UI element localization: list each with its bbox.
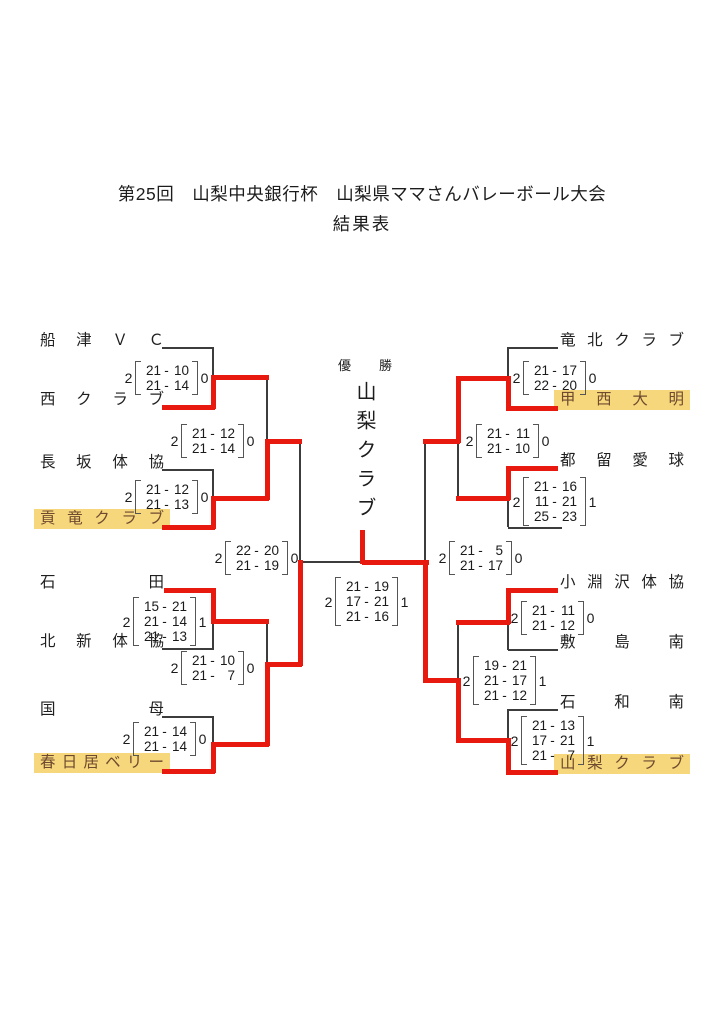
set-score-a: 21 <box>190 668 207 683</box>
set-score-row: 21-7 <box>190 668 235 683</box>
set-score-b: 21 <box>510 658 527 673</box>
score-bracket-left <box>523 361 529 395</box>
set-score-b: 13 <box>170 629 187 644</box>
set-scores: 15-2121-1421-13 <box>140 597 189 646</box>
winner-path-line <box>506 406 558 411</box>
team-shikishima-minami: 敷島南 <box>560 634 684 651</box>
label-char: 竜 <box>560 332 576 349</box>
set-score-a: 21 <box>142 614 159 629</box>
winner-path-line <box>362 560 429 565</box>
set-score-dash: - <box>502 426 513 441</box>
label-char: 南 <box>668 694 684 711</box>
set-score-b: 17 <box>560 363 577 378</box>
set-score-a: 21 <box>485 426 502 441</box>
bracket-line <box>266 623 268 662</box>
winner-path-line <box>456 738 510 743</box>
winner-path-line <box>456 678 461 742</box>
score-bracket-left <box>225 541 231 575</box>
set-score-row: 21-16 <box>344 609 389 624</box>
label-char: Ｖ <box>112 332 128 349</box>
set-score-b: 23 <box>560 509 577 524</box>
champion-name: 山梨クラブ <box>350 381 379 526</box>
score-bracket-left <box>133 597 139 646</box>
set-score-row: 21-14 <box>144 378 189 393</box>
champion-stem-line <box>360 530 365 564</box>
loser-set-count: 1 <box>196 614 209 630</box>
loser-set-count: 0 <box>512 550 525 566</box>
set-score-a: 21 <box>530 718 547 733</box>
set-score-b: 11 <box>513 426 530 441</box>
bracket-line <box>212 469 214 496</box>
set-score-dash: - <box>207 668 218 683</box>
loser-set-count: 0 <box>539 433 552 449</box>
set-score-dash: - <box>549 479 560 494</box>
set-score-a: 21 <box>190 653 207 668</box>
set-score-b: 12 <box>172 482 189 497</box>
winner-path-line <box>211 742 269 747</box>
label-char: 春 <box>40 754 56 771</box>
winner-path-line <box>211 496 216 529</box>
set-score-b: 17 <box>486 558 503 573</box>
set-score-dash: - <box>502 441 513 456</box>
set-score-a: 22 <box>234 543 251 558</box>
label-char: ラ <box>641 332 657 349</box>
loser-set-count: 1 <box>398 594 411 610</box>
label-char: 坂 <box>76 454 92 471</box>
set-score-a: 11 <box>532 494 549 509</box>
score-semifinal-left: 222-2021-190 <box>212 541 301 575</box>
set-score-b: 12 <box>510 688 527 703</box>
label-char: ベ <box>105 754 121 771</box>
set-score-dash: - <box>207 441 218 456</box>
set-score-b: 12 <box>558 618 575 633</box>
score-m4-left: 221-1421-140 <box>120 722 209 756</box>
set-scores: 21-1221-13 <box>142 480 191 514</box>
label-char: 愛 <box>632 452 648 469</box>
set-score-row: 21-11 <box>485 426 530 441</box>
set-score-b: 14 <box>218 441 235 456</box>
set-score-a: 21 <box>485 441 502 456</box>
team-isawa-minami: 石和南 <box>560 694 684 711</box>
winner-path-line <box>456 496 510 501</box>
set-scores: 21-1021-7 <box>188 651 237 685</box>
label-char: 竜 <box>67 510 83 527</box>
winner-path-line <box>265 662 302 667</box>
set-score-dash: - <box>499 658 510 673</box>
score-r2-lower-right: 219-2121-1721-121 <box>460 656 549 705</box>
set-score-a: 21 <box>458 543 475 558</box>
score-m3-left: 215-2121-1421-131 <box>120 597 209 646</box>
set-score-a: 21 <box>144 378 161 393</box>
score-bracket-left <box>521 716 527 765</box>
label-char: 津 <box>76 332 92 349</box>
set-score-row: 21-11 <box>530 603 575 618</box>
set-score-a: 21 <box>144 482 161 497</box>
bracket-line <box>457 624 459 678</box>
set-score-row: 21-12 <box>144 482 189 497</box>
winner-path-line <box>162 405 215 410</box>
bracket-line <box>507 500 509 527</box>
page-subtitle: 結果表 <box>0 211 724 236</box>
label-char: リ <box>127 754 143 771</box>
set-score-a: 21 <box>190 426 207 441</box>
winner-path-line <box>506 770 558 775</box>
winner-path-line <box>506 466 511 500</box>
score-final: 221-1917-2121-161 <box>322 577 411 626</box>
label-char: 敷 <box>560 634 576 651</box>
set-score-row: 21-17 <box>458 558 503 573</box>
set-score-dash: - <box>547 748 558 763</box>
winner-set-count: 2 <box>322 594 335 610</box>
score-bracket-left <box>181 424 187 458</box>
set-scores: 21-1121-12 <box>528 601 577 635</box>
set-score-b: 10 <box>218 653 235 668</box>
label-char: 小 <box>560 574 576 591</box>
team-kokubo: 国母 <box>40 701 164 718</box>
label-char: 南 <box>668 634 684 651</box>
winner-path-line <box>211 375 216 409</box>
page-title: 第25回 山梨中央銀行杯 山梨県ママさんバレーボール大会 <box>0 181 724 206</box>
loser-set-count: 0 <box>196 731 209 747</box>
set-score-dash: - <box>549 378 560 393</box>
bracket-line <box>424 441 426 560</box>
bracket-line <box>162 469 213 471</box>
bracket-line <box>212 623 214 650</box>
set-score-a: 21 <box>532 479 549 494</box>
set-score-b: 19 <box>372 579 389 594</box>
set-score-row: 21-10 <box>485 441 530 456</box>
set-score-row: 21-13 <box>530 718 575 733</box>
set-score-row: 21-17 <box>532 363 577 378</box>
bracket-line <box>212 347 214 375</box>
winner-set-count: 2 <box>122 370 135 386</box>
label-char: 新 <box>76 633 92 650</box>
winner-path-line <box>162 769 215 774</box>
set-score-row: 21-14 <box>142 724 187 739</box>
label-char: 貢 <box>40 510 56 527</box>
bracket-line <box>162 347 213 349</box>
score-m4-right: 221-1317-2121-71 <box>508 716 597 765</box>
label-char: 淵 <box>587 574 603 591</box>
set-score-row: 21-12 <box>190 426 235 441</box>
team-tsuru-aikyu: 都留愛球 <box>560 452 684 469</box>
set-score-a: 21 <box>144 497 161 512</box>
loser-set-count: 1 <box>536 673 549 689</box>
set-score-row: 11-21 <box>532 494 577 509</box>
label-char: 体 <box>112 454 128 471</box>
set-score-row: 19-21 <box>482 658 527 673</box>
loser-set-count: 0 <box>584 610 597 626</box>
loser-set-count: 1 <box>586 494 599 510</box>
winner-path-line <box>211 496 269 501</box>
set-score-a: 21 <box>530 748 547 763</box>
label-char: ク <box>614 755 630 772</box>
loser-set-count: 1 <box>584 733 597 749</box>
team-funatsu-vc: 船津ＶＣ <box>40 332 164 349</box>
label-char: ブ <box>668 332 684 349</box>
bracket-line <box>508 709 558 711</box>
set-score-a: 21 <box>142 629 159 644</box>
score-bracket-left <box>135 480 141 514</box>
set-scores: 21-1021-14 <box>142 361 191 395</box>
bracket-line <box>507 347 509 376</box>
label-char: 明 <box>668 391 684 408</box>
winner-path-line <box>265 439 302 444</box>
set-scores: 19-2121-1721-12 <box>480 656 529 705</box>
set-score-a: 22 <box>532 378 549 393</box>
set-score-b: 17 <box>510 673 527 688</box>
score-r2-lower-left: 221-1021-70 <box>168 651 257 685</box>
set-score-b: 7 <box>218 668 235 683</box>
loser-set-count: 0 <box>198 489 211 505</box>
set-score-dash: - <box>549 494 560 509</box>
winner-path-line <box>298 560 303 666</box>
label-char: 協 <box>668 574 684 591</box>
winner-path-line <box>506 466 558 471</box>
bracket-line <box>457 443 459 498</box>
set-score-row: 21-14 <box>142 614 187 629</box>
set-score-row: 21-12 <box>482 688 527 703</box>
label-char: 島 <box>614 634 630 651</box>
set-score-b: 21 <box>372 594 389 609</box>
set-score-dash: - <box>251 543 262 558</box>
set-score-a: 21 <box>344 609 361 624</box>
loser-set-count: 0 <box>244 660 257 676</box>
winner-path-line <box>211 619 269 624</box>
winner-path-line <box>423 439 460 444</box>
set-score-dash: - <box>159 614 170 629</box>
set-scores: 21-1917-2121-16 <box>342 577 391 626</box>
winner-path-line <box>456 620 510 625</box>
set-score-b: 13 <box>172 497 189 512</box>
set-scores: 21-1221-14 <box>188 424 237 458</box>
team-ishida: 石田 <box>40 574 164 591</box>
set-score-a: 21 <box>144 363 161 378</box>
bracket-line <box>162 648 213 650</box>
set-score-dash: - <box>547 618 558 633</box>
team-kobuchizawa-taikyo: 小淵沢体協 <box>560 574 684 591</box>
label-char: 石 <box>40 574 56 591</box>
set-score-b: 12 <box>218 426 235 441</box>
set-score-dash: - <box>547 603 558 618</box>
set-score-b: 21 <box>558 733 575 748</box>
set-score-row: 25-23 <box>532 509 577 524</box>
set-score-a: 15 <box>142 599 159 614</box>
set-score-dash: - <box>549 509 560 524</box>
bracket-line <box>508 649 558 651</box>
winner-path-line <box>265 439 270 500</box>
set-score-b: 10 <box>513 441 530 456</box>
score-m1-right: 221-1722-200 <box>510 361 599 395</box>
set-score-dash: - <box>159 739 170 754</box>
winner-path-line <box>506 376 511 410</box>
winner-path-line <box>506 588 511 624</box>
label-char: 留 <box>596 452 612 469</box>
winner-path-line <box>423 678 460 683</box>
set-score-dash: - <box>361 609 372 624</box>
set-score-a: 21 <box>142 724 159 739</box>
bracket-line <box>266 377 268 439</box>
set-score-b: 13 <box>558 718 575 733</box>
label-char: 都 <box>560 452 576 469</box>
set-score-dash: - <box>159 724 170 739</box>
set-score-a: 21 <box>530 603 547 618</box>
set-score-row: 21-14 <box>142 739 187 754</box>
set-score-dash: - <box>547 718 558 733</box>
label-char: 長 <box>40 454 56 471</box>
final-line <box>300 561 362 563</box>
label-char: 体 <box>641 574 657 591</box>
set-score-row: 21-5 <box>458 543 503 558</box>
set-score-row: 17-21 <box>344 594 389 609</box>
team-ryuhoku-club: 竜北クラブ <box>560 332 684 349</box>
set-score-b: 16 <box>560 479 577 494</box>
winner-set-count: 2 <box>168 433 181 449</box>
winner-path-line <box>265 662 270 746</box>
winner-path-line <box>506 738 511 774</box>
winner-set-count: 2 <box>122 489 135 505</box>
set-score-dash: - <box>547 733 558 748</box>
set-score-a: 21 <box>234 558 251 573</box>
set-score-dash: - <box>361 579 372 594</box>
score-bracket-left <box>473 656 479 705</box>
label-char: 西 <box>40 391 56 408</box>
score-m3-right: 221-1121-120 <box>508 601 597 635</box>
set-score-b: 10 <box>172 363 189 378</box>
set-score-a: 17 <box>344 594 361 609</box>
label-char: 田 <box>148 574 164 591</box>
label-char: 大 <box>632 391 648 408</box>
set-score-b: 11 <box>558 603 575 618</box>
set-score-dash: - <box>207 426 218 441</box>
set-score-b: 20 <box>262 543 279 558</box>
set-scores: 22-2021-19 <box>232 541 281 575</box>
set-score-dash: - <box>161 378 172 393</box>
set-score-a: 21 <box>532 363 549 378</box>
set-score-dash: - <box>475 558 486 573</box>
score-m2-left: 221-1221-130 <box>122 480 211 514</box>
tournament-results-sheet: { "title": { "line1": "第25回 山梨中央銀行杯 山梨県マ… <box>0 0 724 1024</box>
set-score-row: 21-10 <box>144 363 189 378</box>
set-score-row: 17-21 <box>530 733 575 748</box>
set-score-a: 21 <box>190 441 207 456</box>
label-char: ク <box>614 332 630 349</box>
winner-path-line <box>162 525 215 530</box>
set-score-a: 21 <box>142 739 159 754</box>
set-score-row: 21-16 <box>532 479 577 494</box>
score-m1-left: 221-1021-140 <box>122 361 211 395</box>
label-char: ラ <box>641 755 657 772</box>
score-bracket-left <box>523 477 529 526</box>
set-score-dash: - <box>207 653 218 668</box>
loser-set-count: 0 <box>586 370 599 386</box>
score-bracket-left <box>135 361 141 395</box>
set-score-b: 14 <box>170 739 187 754</box>
label-char: ブ <box>668 755 684 772</box>
winner-set-count: 2 <box>436 550 449 566</box>
set-score-b: 21 <box>560 494 577 509</box>
winner-set-count: 2 <box>120 614 133 630</box>
winner-set-count: 2 <box>510 370 523 386</box>
set-score-b: 16 <box>372 609 389 624</box>
bracket-line <box>299 439 301 560</box>
winner-path-line <box>456 376 510 381</box>
winner-path-line <box>211 588 216 623</box>
winner-set-count: 2 <box>120 731 133 747</box>
set-score-b: 21 <box>170 599 187 614</box>
winner-set-count: 2 <box>510 494 523 510</box>
set-score-row: 22-20 <box>234 543 279 558</box>
set-score-row: 21-19 <box>344 579 389 594</box>
label-char: ク <box>94 510 110 527</box>
score-r2-upper-left: 221-1221-140 <box>168 424 257 458</box>
label-char: 北 <box>40 633 56 650</box>
bracket-line <box>507 624 509 650</box>
winner-set-count: 2 <box>460 673 473 689</box>
winner-path-line <box>456 376 461 443</box>
winner-set-count: 2 <box>168 660 181 676</box>
set-score-b: 14 <box>172 378 189 393</box>
label-char: ク <box>76 391 92 408</box>
set-score-b: 14 <box>170 614 187 629</box>
set-score-a: 17 <box>530 733 547 748</box>
winner-set-count: 2 <box>212 550 225 566</box>
set-score-dash: - <box>161 482 172 497</box>
set-score-a: 21 <box>482 688 499 703</box>
label-char: 北 <box>587 332 603 349</box>
champion-label: 優勝 <box>338 355 392 374</box>
bracket-line-bye-slot <box>508 527 562 529</box>
set-score-row: 21-19 <box>234 558 279 573</box>
set-score-row: 15-21 <box>142 599 187 614</box>
winner-path-line <box>164 588 215 593</box>
set-score-row: 21-17 <box>482 673 527 688</box>
set-score-dash: - <box>161 497 172 512</box>
set-score-dash: - <box>499 673 510 688</box>
set-score-dash: - <box>159 599 170 614</box>
label-char: 球 <box>668 452 684 469</box>
set-score-dash: - <box>251 558 262 573</box>
set-score-row: 21-10 <box>190 653 235 668</box>
set-score-row: 21-12 <box>530 618 575 633</box>
winner-path-line <box>211 375 269 380</box>
set-score-dash: - <box>361 594 372 609</box>
winner-path-line <box>423 560 428 682</box>
label-char: 船 <box>40 332 56 349</box>
team-kasugai-berry: 春日居ベリー <box>34 753 170 773</box>
score-bracket-left <box>449 541 455 575</box>
set-score-dash: - <box>161 363 172 378</box>
set-score-dash: - <box>475 543 486 558</box>
loser-set-count: 0 <box>198 370 211 386</box>
set-scores: 21-1611-2125-23 <box>530 477 579 526</box>
winner-path-line <box>211 742 216 773</box>
winner-set-count: 2 <box>463 433 476 449</box>
set-score-row: 22-20 <box>532 378 577 393</box>
set-score-b: 14 <box>170 724 187 739</box>
label-char: 石 <box>560 694 576 711</box>
set-score-a: 25 <box>532 509 549 524</box>
set-scores: 21-521-17 <box>456 541 505 575</box>
set-score-a: 21 <box>530 618 547 633</box>
set-score-b: 20 <box>560 378 577 393</box>
label-char: 沢 <box>614 574 630 591</box>
label-char: 国 <box>40 701 56 718</box>
team-nagasaka-taikyo: 長坂体協 <box>40 454 164 471</box>
set-scores: 21-1121-10 <box>483 424 532 458</box>
score-m2-right: 221-1611-2125-231 <box>510 477 599 526</box>
set-score-b: 7 <box>558 748 575 763</box>
